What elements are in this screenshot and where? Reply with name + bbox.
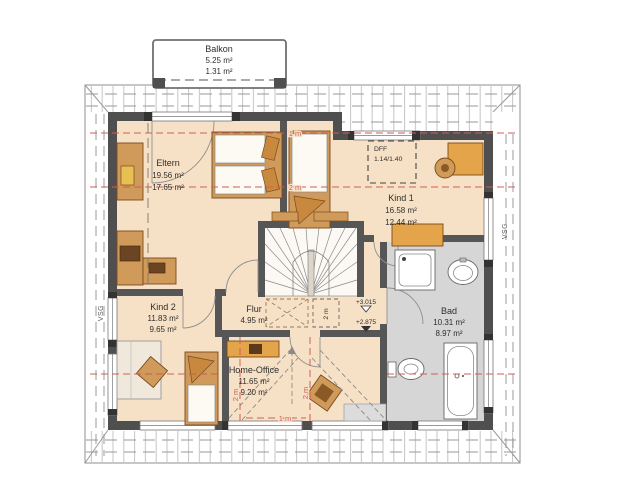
- floor-plan-drawing: Balkon 5.25 m² 1.31 m² Eltern 19.56 m² 1…: [0, 0, 640, 480]
- height-1m-top: 1 m: [289, 129, 302, 138]
- height-2m-right: 2 m: [301, 387, 310, 400]
- toilet: [388, 359, 424, 380]
- eltern-name: Eltern: [156, 158, 180, 168]
- kind2-name: Kind 2: [150, 302, 176, 312]
- homeoffice-name: Home-Office: [229, 365, 279, 375]
- kind1-shelf-a: [272, 212, 298, 221]
- kind1-name: Kind 1: [388, 193, 414, 203]
- flur-name: Flur: [246, 304, 262, 314]
- floor-plan-canvas: Balkon 5.25 m² 1.31 m² Eltern 19.56 m² 1…: [0, 0, 640, 480]
- kind2-reduced: 9.65 m²: [149, 325, 176, 334]
- eltern-double-bed: [212, 132, 282, 198]
- balcony-door-window: [152, 112, 232, 121]
- balkon-name: Balkon: [205, 44, 233, 54]
- window-bad-bottom: [418, 421, 468, 430]
- dff-label: DFF: [374, 146, 387, 153]
- kind2-area: 11.83 m²: [148, 314, 179, 323]
- window-kind2-left-1: [108, 298, 117, 340]
- kind1-shelf-b: [314, 212, 348, 221]
- window-kind2-left-2: [108, 354, 117, 415]
- height-2m-left: 2 m: [231, 389, 240, 402]
- eltern-area: 19.56 m²: [152, 171, 184, 180]
- window-bad-right: [484, 340, 493, 413]
- balkon-area: 5.25 m²: [205, 56, 232, 65]
- stair-newel: [308, 250, 314, 296]
- vsg-label-right: VSG: [502, 223, 509, 239]
- niche-height-label: 2 m: [323, 308, 330, 320]
- window-kind1-top: [354, 131, 420, 140]
- bad-area: 10.31 m²: [433, 318, 465, 327]
- window-kind1-right: [484, 198, 493, 260]
- kind1-reduced: 12.44 m²: [385, 218, 417, 227]
- balkon-reduced: 1.31 m²: [205, 67, 232, 76]
- dff-size: 1.14/1.40: [374, 156, 403, 163]
- kind2-bed: [185, 352, 218, 425]
- vsg-label-left: VSG: [98, 305, 105, 321]
- kind1-area: 16.58 m²: [385, 206, 417, 215]
- bad-name: Bad: [441, 306, 457, 316]
- height-1m-bottom: 1 m: [279, 414, 292, 423]
- height-2m-top: 2 m: [289, 183, 302, 192]
- terrace-threshold: [344, 404, 386, 421]
- bathtub: [444, 343, 477, 419]
- flur-area: 4.95 m²: [240, 316, 267, 325]
- shower: [395, 250, 435, 290]
- homeoffice-reduced: 9.20 m²: [240, 388, 267, 397]
- kind1-dresser: [392, 224, 443, 246]
- level-lower: +2.875: [356, 319, 376, 326]
- level-upper: +3.015: [356, 299, 376, 306]
- bad-reduced: 8.97 m²: [435, 329, 462, 338]
- french-door-homeoffice: [312, 421, 388, 430]
- homeoffice-area: 11.65 m²: [239, 377, 270, 386]
- eltern-reduced: 17.65 m²: [152, 183, 184, 192]
